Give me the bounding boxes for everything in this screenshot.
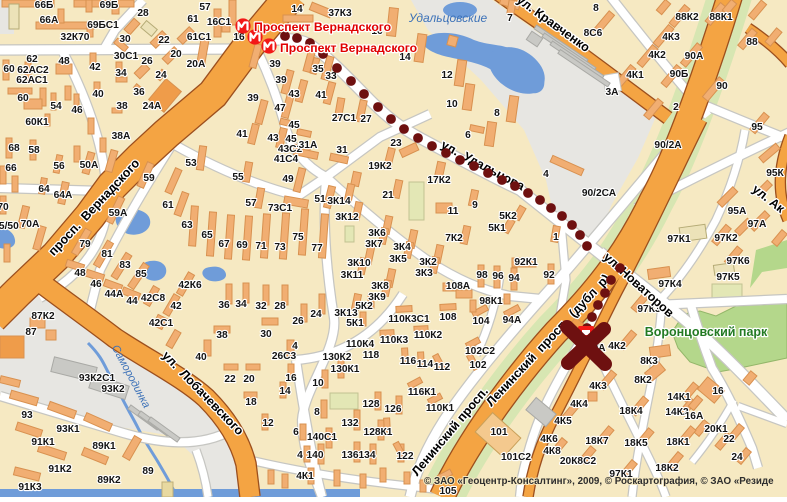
svg-text:9: 9 [472,200,478,211]
svg-text:93К2: 93К2 [101,384,125,395]
svg-text:18К4: 18К4 [619,406,643,417]
svg-text:43: 43 [267,133,279,144]
svg-text:14К1: 14К1 [667,392,691,403]
svg-text:41: 41 [236,129,248,140]
svg-text:42С1: 42С1 [149,318,174,329]
svg-text:4К1: 4К1 [626,70,644,81]
svg-text:17К2: 17К2 [427,175,451,186]
svg-text:47: 47 [274,103,286,114]
svg-text:24А: 24А [143,101,162,112]
svg-text:4К8: 4К8 [543,446,561,457]
svg-text:88К1: 88К1 [709,12,733,23]
svg-text:3К3: 3К3 [415,268,433,279]
svg-text:118: 118 [363,350,380,361]
svg-text:66: 66 [5,163,17,174]
svg-text:3К4: 3К4 [393,242,411,253]
svg-text:70А: 70А [21,219,40,230]
svg-text:95К: 95К [766,168,784,179]
svg-text:8К2: 8К2 [634,375,652,386]
svg-text:55: 55 [232,172,244,183]
svg-text:98К1: 98К1 [479,296,503,307]
svg-text:59А: 59А [109,208,128,219]
svg-text:104: 104 [473,316,490,327]
svg-text:38: 38 [116,101,128,112]
svg-text:3К11: 3К11 [341,270,364,281]
svg-text:4: 4 [543,169,549,180]
svg-text:51: 51 [314,194,326,205]
svg-text:61: 61 [187,14,199,25]
svg-text:97К6: 97К6 [726,256,750,267]
svg-text:8: 8 [314,407,320,418]
svg-text:3К14: 3К14 [327,196,351,207]
svg-text:8: 8 [593,3,599,14]
svg-text:39: 39 [275,75,287,86]
svg-text:10: 10 [446,99,458,110]
svg-text:3К7: 3К7 [365,239,383,250]
svg-text:40: 40 [195,352,207,363]
svg-text:4К1: 4К1 [296,471,314,482]
svg-text:40: 40 [92,89,104,100]
svg-text:102С2: 102С2 [465,346,495,357]
svg-text:101С2: 101С2 [501,452,531,463]
svg-text:12: 12 [441,70,453,81]
svg-text:97К1: 97К1 [667,234,691,245]
svg-text:Удальцовские: Удальцовские [408,11,488,25]
svg-text:3К2: 3К2 [419,257,437,268]
svg-text:77: 77 [311,243,323,254]
svg-text:91К1: 91К1 [31,437,55,448]
svg-text:116К1: 116К1 [408,387,437,398]
svg-text:63: 63 [181,220,193,231]
svg-text:18К1: 18К1 [666,437,690,448]
svg-text:90А: 90А [685,51,704,62]
svg-text:6: 6 [293,427,299,438]
svg-text:110К2: 110К2 [414,330,443,341]
svg-text:97К5: 97К5 [716,272,740,283]
svg-text:89К1: 89К1 [92,441,116,452]
svg-text:57: 57 [245,198,257,209]
svg-text:95А: 95А [728,206,747,217]
svg-text:58: 58 [28,145,40,156]
svg-text:8К3: 8К3 [640,356,658,367]
svg-text:93К2С1: 93К2С1 [79,373,116,384]
svg-text:18К2: 18К2 [655,463,679,474]
svg-text:50А: 50А [80,160,99,171]
svg-text:19К2: 19К2 [368,161,392,172]
svg-text:73С1: 73С1 [268,203,293,214]
svg-text:26: 26 [141,56,153,67]
svg-text:108А: 108А [446,281,471,292]
svg-text:81: 81 [101,249,113,260]
svg-text:Воронцовский парк: Воронцовский парк [645,325,768,339]
svg-text:24: 24 [731,452,743,463]
svg-text:2: 2 [673,102,679,113]
svg-text:5К1: 5К1 [488,223,506,234]
svg-text:20А: 20А [187,59,206,70]
svg-text:91К3: 91К3 [18,482,42,493]
svg-text:110К3С1: 110К3С1 [388,314,430,325]
svg-text:110К1: 110К1 [426,403,455,414]
svg-text:44: 44 [126,296,138,307]
svg-text:93К1: 93К1 [56,424,80,435]
svg-text:110К3: 110К3 [380,335,409,346]
svg-text:22: 22 [224,374,236,385]
svg-text:68: 68 [8,143,20,154]
svg-text:24: 24 [310,309,322,320]
svg-text:97К4: 97К4 [658,279,682,290]
svg-text:64А: 64А [54,190,73,201]
svg-text:94: 94 [508,273,520,284]
svg-text:1: 1 [553,232,559,243]
svg-text:42: 42 [170,301,182,312]
svg-text:66Б: 66Б [35,0,54,11]
svg-text:11: 11 [448,206,459,217]
svg-text:134: 134 [359,450,376,461]
svg-text:140: 140 [307,450,324,461]
svg-text:36: 36 [133,87,145,98]
svg-text:62АС1: 62АС1 [16,75,48,86]
svg-text:32: 32 [255,301,267,312]
svg-text:20: 20 [170,49,182,60]
svg-text:60: 60 [3,64,15,75]
svg-text:42: 42 [89,62,101,73]
svg-text:54: 54 [50,101,62,112]
svg-text:39: 39 [269,59,281,70]
svg-text:26С3: 26С3 [272,351,297,362]
svg-text:4К6: 4К6 [540,434,558,445]
svg-text:30: 30 [119,34,131,45]
svg-text:4К3: 4К3 [589,381,607,392]
svg-text:48: 48 [58,56,70,67]
svg-text:4К5: 4К5 [554,416,572,427]
svg-text:8: 8 [494,108,500,119]
svg-text:16: 16 [285,373,297,384]
svg-text:20К8С2: 20К8С2 [560,456,597,467]
svg-text:30С1: 30С1 [114,51,139,62]
svg-text:90/2СА: 90/2СА [582,188,617,199]
svg-text:26: 26 [292,316,304,327]
svg-text:92К1: 92К1 [514,257,538,268]
svg-text:6: 6 [465,130,471,141]
svg-text:45/50: 45/50 [0,221,19,232]
svg-text:37К3: 37К3 [328,8,352,19]
svg-text:16: 16 [233,32,245,43]
svg-text:3К10: 3К10 [347,258,371,269]
svg-text:102: 102 [470,360,487,371]
svg-text:92: 92 [543,270,555,281]
svg-text:41С4: 41С4 [274,154,299,165]
svg-text:64: 64 [38,184,50,195]
svg-text:108: 108 [440,312,457,323]
svg-text:34: 34 [235,299,247,310]
svg-text:128: 128 [363,399,380,410]
svg-text:59: 59 [143,173,155,184]
svg-text:14: 14 [279,386,291,397]
svg-text:69: 69 [236,240,248,251]
svg-text:88К2: 88К2 [675,12,699,23]
svg-text:20: 20 [243,374,255,385]
svg-text:69Б: 69Б [100,0,119,11]
svg-text:73: 73 [274,242,286,253]
svg-text:53: 53 [185,158,197,169]
svg-text:23: 23 [390,138,402,149]
svg-text:10: 10 [312,378,324,389]
svg-text:4К3: 4К3 [662,32,680,43]
svg-text:4К2: 4К2 [648,50,666,61]
svg-text:18: 18 [245,397,257,408]
svg-text:5К1: 5К1 [346,318,364,329]
svg-text:94А: 94А [503,315,522,326]
svg-text:7К2: 7К2 [445,233,463,244]
svg-text:4К2: 4К2 [608,341,626,352]
svg-text:21: 21 [382,190,394,201]
svg-text:44А: 44А [105,289,124,300]
svg-text:65: 65 [201,230,213,241]
svg-text:69БС1: 69БС1 [87,20,119,31]
svg-text:97А: 97А [748,219,767,230]
svg-text:38: 38 [216,330,228,341]
svg-text:88: 88 [746,37,758,48]
svg-text:27: 27 [360,114,372,125]
svg-text:90/2А: 90/2А [654,140,682,151]
svg-text:4: 4 [297,450,303,461]
svg-text:114: 114 [417,359,434,370]
svg-text:4К4: 4К4 [570,399,588,410]
svg-text:60: 60 [17,93,29,104]
svg-text:60К1: 60К1 [25,117,49,128]
svg-text:35: 35 [312,64,324,75]
svg-text:70: 70 [0,202,9,213]
svg-text:12: 12 [262,418,274,429]
svg-text:49: 49 [282,174,294,185]
svg-text:66А: 66А [40,15,59,26]
svg-text:36: 36 [218,300,230,311]
svg-text:5К2: 5К2 [355,301,373,312]
svg-text:Проспект Вернадского: Проспект Вернадского [254,20,391,34]
svg-text:3К5: 3К5 [389,254,407,265]
svg-text:61С1: 61С1 [187,32,212,43]
svg-text:32К70: 32К70 [61,32,90,43]
svg-text:3К12: 3К12 [335,212,359,223]
svg-text:42С8: 42С8 [141,293,166,304]
svg-text:126: 126 [385,404,402,415]
svg-text:43: 43 [288,89,300,100]
svg-text:46: 46 [90,279,102,290]
svg-text:28: 28 [137,8,149,19]
svg-text:18К7: 18К7 [585,436,609,447]
svg-text:8С6: 8С6 [584,28,603,39]
svg-text:22: 22 [723,434,735,445]
svg-text:16А: 16А [685,411,704,422]
svg-text:16: 16 [712,386,724,397]
svg-text:87: 87 [25,327,37,338]
svg-text:28: 28 [274,301,286,312]
svg-text:90Б: 90Б [670,69,689,80]
svg-text:96: 96 [492,271,504,282]
svg-text:34: 34 [115,68,127,79]
svg-text:122: 122 [397,451,414,462]
svg-text:3А: 3А [605,87,619,98]
svg-text:57: 57 [199,2,211,13]
svg-text:130К2: 130К2 [323,352,352,363]
svg-text:67: 67 [218,239,230,250]
svg-text:136: 136 [342,450,359,461]
svg-text:91К2: 91К2 [48,464,72,475]
svg-text:46: 46 [71,105,83,116]
svg-text:Проспект Вернадского: Проспект Вернадского [280,41,417,55]
svg-text:3К6: 3К6 [368,228,386,239]
svg-text:98: 98 [476,270,488,281]
svg-text:61: 61 [162,200,174,211]
svg-text:22: 22 [158,35,170,46]
svg-text:83: 83 [119,260,131,271]
svg-text:128К1: 128К1 [364,427,393,438]
svg-text:89К2: 89К2 [97,475,121,486]
svg-text:75: 75 [292,232,304,243]
svg-text:116: 116 [400,356,417,367]
svg-text:130К1: 130К1 [331,364,360,375]
svg-text:85: 85 [135,269,147,280]
svg-text:132: 132 [342,418,359,429]
svg-text:56: 56 [53,161,65,172]
svg-text:© ЗАО «Геоцентр-Консалтинг», 2: © ЗАО «Геоцентр-Консалтинг», 2009, © Рос… [424,476,774,487]
svg-text:112: 112 [434,362,451,373]
svg-text:45: 45 [288,120,300,131]
svg-text:5К2: 5К2 [499,211,517,222]
svg-text:16С1: 16С1 [207,17,232,28]
svg-text:3К8: 3К8 [371,281,389,292]
svg-text:41: 41 [315,90,327,101]
svg-text:90: 90 [716,81,728,92]
svg-text:31: 31 [336,145,348,156]
svg-text:33: 33 [325,71,337,82]
svg-text:79: 79 [79,239,91,250]
svg-text:93: 93 [21,410,33,421]
svg-text:95: 95 [751,122,763,133]
svg-text:39: 39 [247,93,259,104]
svg-text:14: 14 [291,4,303,15]
svg-text:62: 62 [26,54,38,65]
svg-text:89: 89 [142,466,154,477]
svg-text:38А: 38А [112,131,131,142]
svg-text:31А: 31А [299,140,318,151]
svg-text:105: 105 [440,486,457,497]
svg-text:27С1: 27С1 [332,113,357,124]
svg-text:30: 30 [260,329,272,340]
svg-text:101: 101 [491,427,508,438]
svg-text:18К5: 18К5 [624,438,648,449]
svg-text:71: 71 [255,241,267,252]
svg-text:97К2: 97К2 [714,233,738,244]
svg-text:87К2: 87К2 [31,311,55,322]
svg-text:24: 24 [155,70,167,81]
svg-text:48: 48 [74,268,86,279]
svg-text:42К6: 42К6 [178,280,202,291]
svg-text:7: 7 [507,13,513,24]
svg-text:140С1: 140С1 [307,432,337,443]
svg-text:110К4: 110К4 [346,339,375,350]
